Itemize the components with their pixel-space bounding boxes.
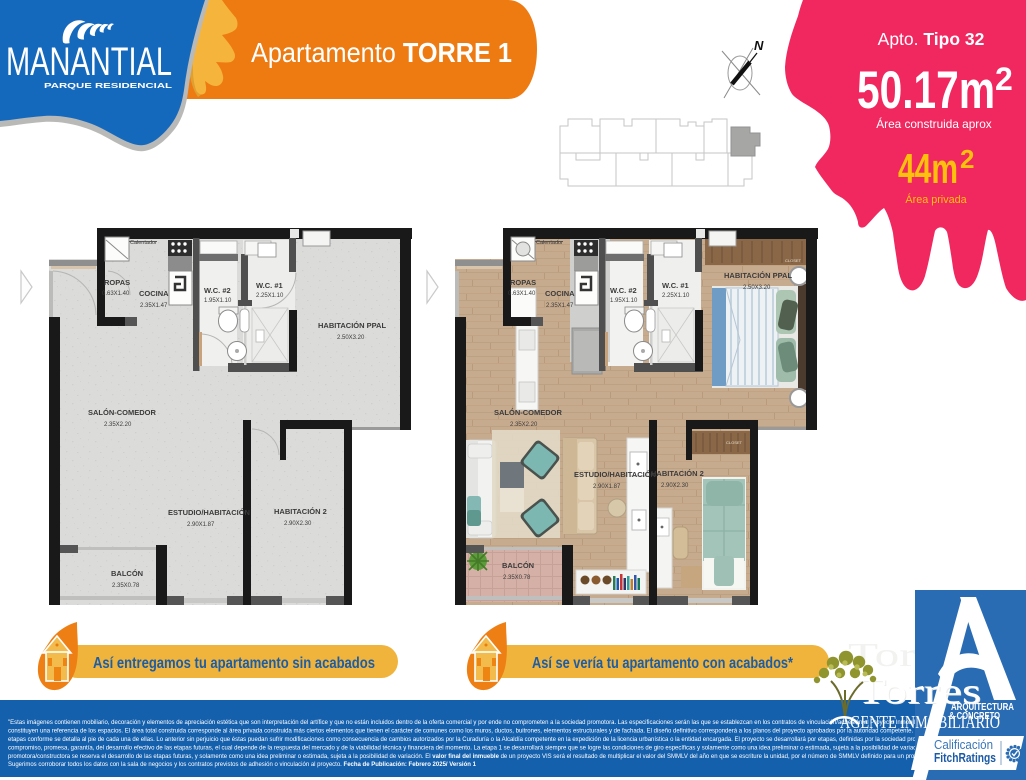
svg-text:N: N — [754, 38, 764, 53]
svg-text:1.95X1.10: 1.95X1.10 — [204, 298, 232, 304]
svg-text:AGENTE INMOBILIARIO: AGENTE INMOBILIARIO — [840, 712, 1000, 732]
svg-text:Así se vería tu apartamento co: Así se vería tu apartamento con acabados… — [532, 655, 794, 672]
svg-text:Sugerimos corroborar todos los: Sugerimos corroborar todos los datos con… — [8, 762, 477, 768]
svg-text:Área construida aprox: Área construida aprox — [876, 117, 992, 131]
svg-text:2.35X2.20: 2.35X2.20 — [510, 422, 538, 428]
svg-text:HABITACIÓN 2: HABITACIÓN 2 — [651, 469, 704, 478]
svg-text:2.90X1.87: 2.90X1.87 — [187, 522, 215, 528]
svg-text:etapas conforme se detalla al: etapas conforme se detalla al pie de cad… — [8, 737, 998, 743]
svg-text:2.25X1.10: 2.25X1.10 — [662, 293, 690, 299]
svg-text:W.C. #2: W.C. #2 — [204, 286, 231, 295]
svg-text:SALÓN-COMEDOR: SALÓN-COMEDOR — [88, 408, 156, 417]
svg-text:HABITACIÓN PPAL: HABITACIÓN PPAL — [724, 271, 792, 280]
svg-text:FitchRatings: FitchRatings — [934, 750, 996, 765]
svg-text:2.25X1.10: 2.25X1.10 — [256, 293, 284, 299]
svg-text:BALCÓN: BALCÓN — [111, 569, 143, 578]
svg-text:2.90X1.87: 2.90X1.87 — [593, 484, 621, 490]
svg-text:W.C. #1: W.C. #1 — [256, 281, 283, 290]
svg-text:Calentador: Calentador — [130, 240, 157, 246]
svg-text:2.35X1.47: 2.35X1.47 — [140, 303, 168, 309]
svg-text:ROPAS: ROPAS — [510, 278, 536, 287]
svg-text:SALÓN-COMEDOR: SALÓN-COMEDOR — [494, 408, 562, 417]
svg-text:COCINA: COCINA — [139, 289, 169, 298]
svg-text:1.95X1.10: 1.95X1.10 — [610, 298, 638, 304]
svg-text:ESTUDIO/HABITACIÓN: ESTUDIO/HABITACIÓN — [574, 470, 656, 479]
svg-text:Apto. Tipo 32: Apto. Tipo 32 — [878, 29, 985, 49]
svg-text:2: 2 — [995, 61, 1013, 97]
svg-text:0.63X1.40: 0.63X1.40 — [508, 291, 536, 297]
svg-text:50.17m: 50.17m — [857, 61, 995, 120]
svg-text:CLOSET: CLOSET — [785, 258, 802, 263]
svg-text:2.35X1.47: 2.35X1.47 — [546, 303, 574, 309]
svg-text:compromiso, promesa, garantía,: compromiso, promesa, garantía, del desar… — [8, 746, 960, 752]
svg-text:2.90X2.30: 2.90X2.30 — [284, 521, 312, 527]
svg-text:BALCÓN: BALCÓN — [502, 561, 534, 570]
svg-text:Apartamento TORRE 1: Apartamento TORRE 1 — [251, 37, 512, 68]
svg-text:2.35X0.78: 2.35X0.78 — [503, 575, 531, 581]
svg-text:MANANTIAL: MANANTIAL — [6, 40, 172, 84]
svg-text:2: 2 — [960, 144, 974, 174]
svg-text:HABITACIÓN PPAL: HABITACIÓN PPAL — [318, 321, 386, 330]
svg-text:2.35X0.78: 2.35X0.78 — [112, 583, 140, 589]
svg-text:ESTUDIO/HABITACIÓN: ESTUDIO/HABITACIÓN — [168, 508, 250, 517]
svg-text:W.C. #1: W.C. #1 — [662, 281, 689, 290]
svg-text:HABITACIÓN 2: HABITACIÓN 2 — [274, 507, 327, 516]
svg-text:44m: 44m — [898, 145, 958, 192]
svg-text:Así entregamos tu apartamento: Así entregamos tu apartamento sin acabad… — [93, 655, 375, 672]
svg-text:ROPAS: ROPAS — [104, 278, 130, 287]
svg-text:W.C. #2: W.C. #2 — [610, 286, 637, 295]
svg-text:2.90X2.30: 2.90X2.30 — [661, 483, 689, 489]
svg-text:PARQUE RESIDENCIAL: PARQUE RESIDENCIAL — [44, 81, 173, 90]
svg-text:Calentador: Calentador — [536, 240, 563, 246]
svg-text:Área privada: Área privada — [905, 193, 966, 206]
svg-text:2.35X2.20: 2.35X2.20 — [104, 422, 132, 428]
svg-text:2.50X3.20: 2.50X3.20 — [743, 285, 771, 291]
svg-text:COCINA: COCINA — [545, 289, 575, 298]
svg-text:promotora/constructora se rese: promotora/constructora se reserva el des… — [8, 754, 978, 760]
svg-text:0.63X1.40: 0.63X1.40 — [102, 291, 130, 297]
svg-text:CLOSET: CLOSET — [726, 440, 743, 445]
svg-text:2.50X3.20: 2.50X3.20 — [337, 335, 365, 341]
